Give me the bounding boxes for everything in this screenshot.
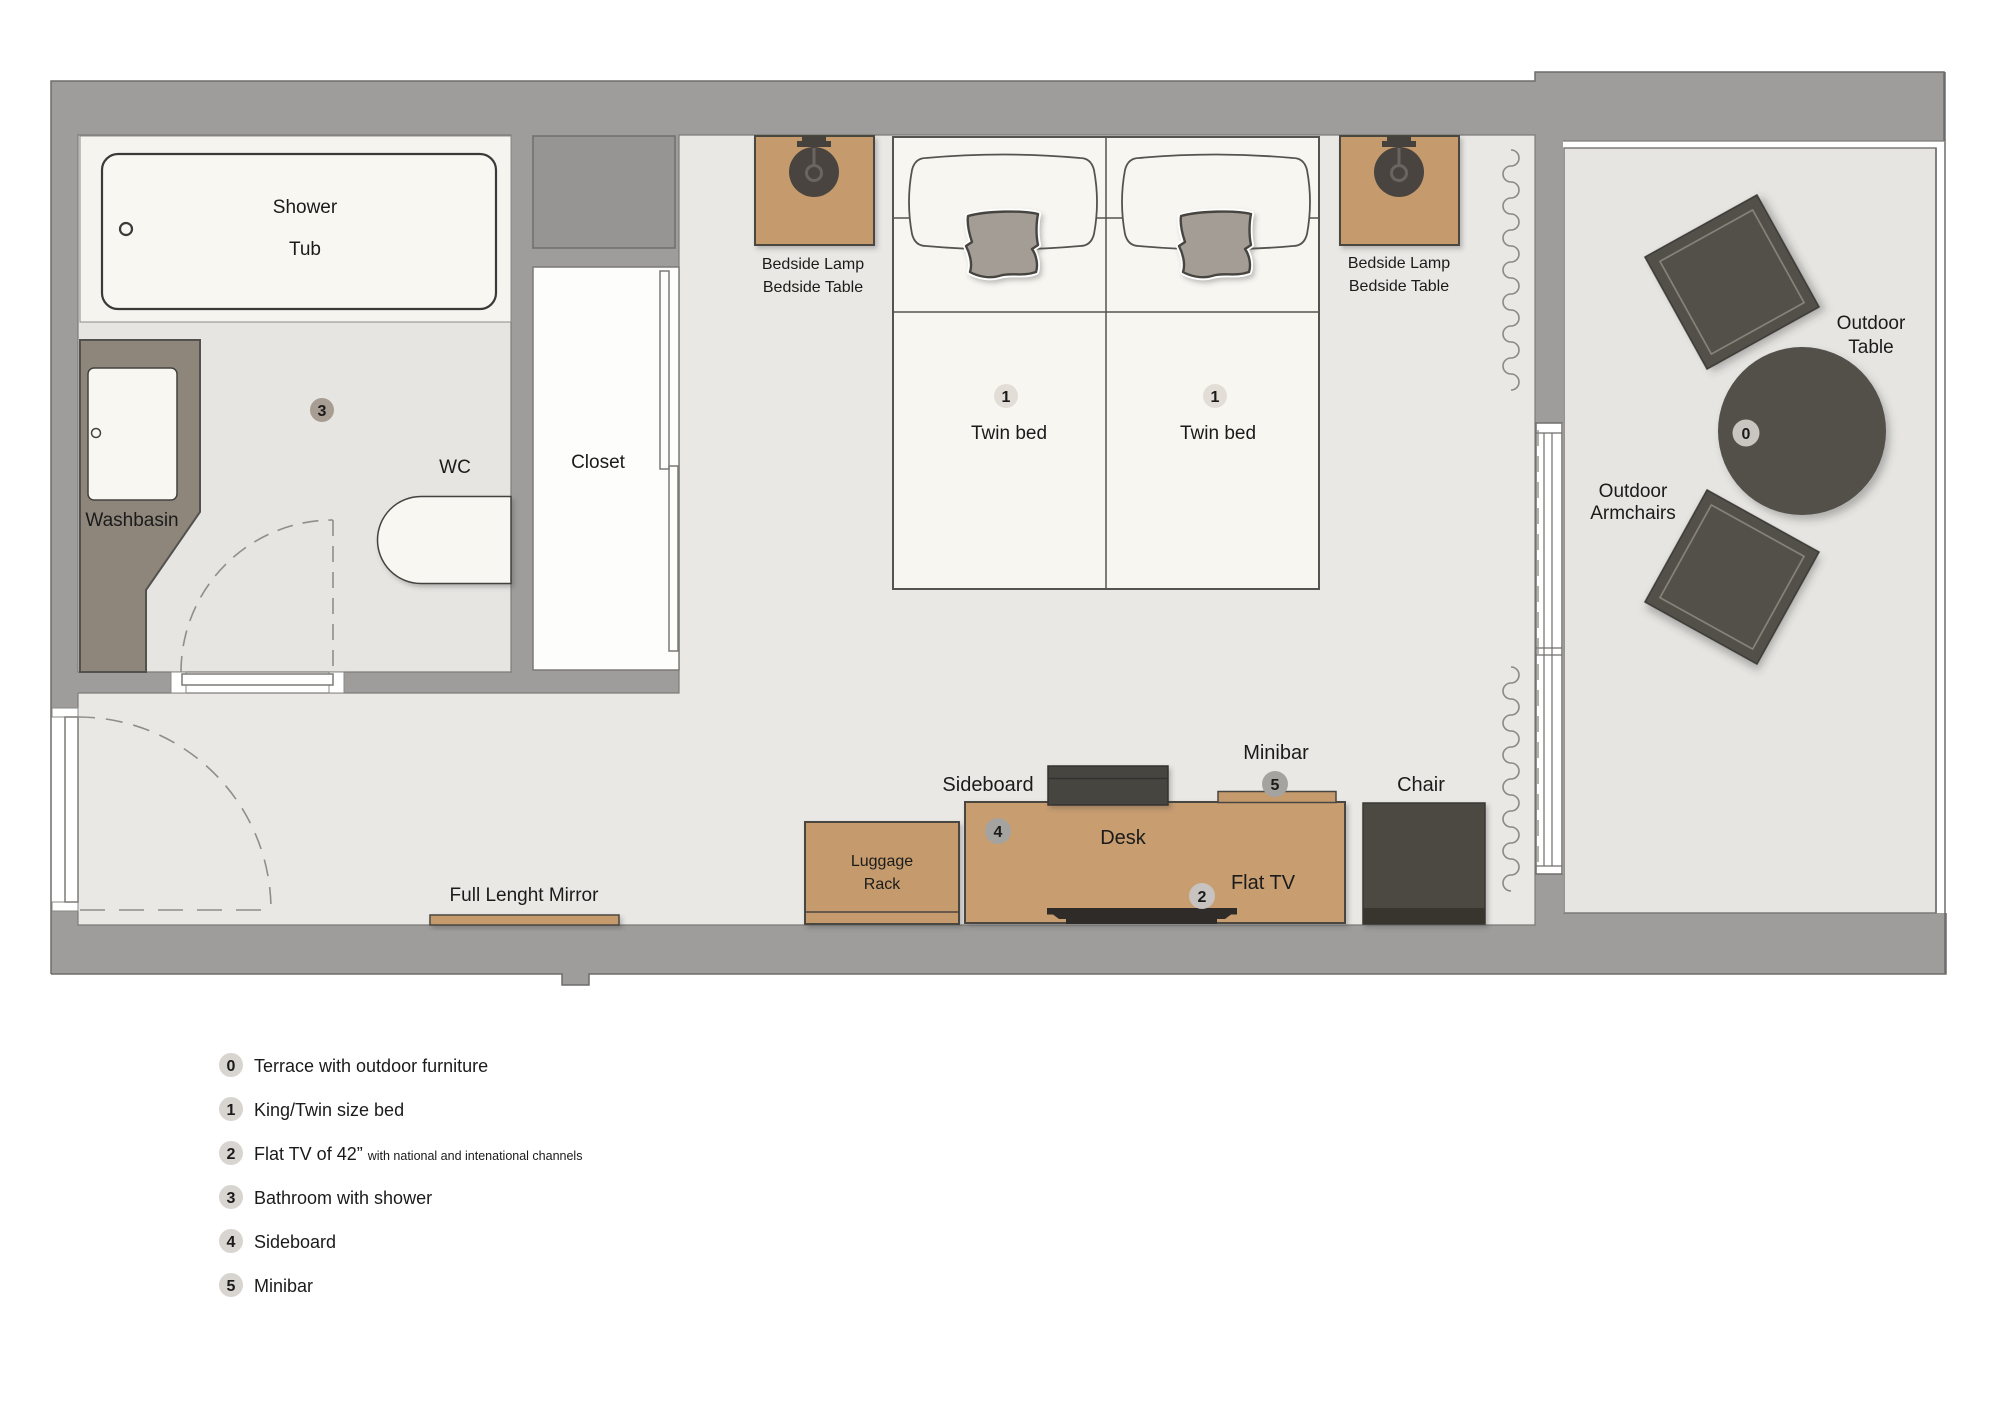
svg-text:Closet: Closet (571, 452, 626, 473)
svg-text:Bathroom with shower: Bathroom with shower (254, 1188, 432, 1208)
svg-text:Minibar: Minibar (254, 1276, 313, 1296)
svg-text:Rack: Rack (864, 876, 901, 893)
svg-text:Table: Table (1848, 337, 1893, 358)
svg-text:Washbasin: Washbasin (85, 510, 178, 531)
svg-text:Bedside Lamp: Bedside Lamp (762, 256, 864, 273)
svg-text:0: 0 (227, 1058, 236, 1075)
svg-text:Sideboard: Sideboard (254, 1232, 336, 1252)
svg-text:Flat TV: Flat TV (1231, 872, 1296, 894)
svg-text:Outdoor: Outdoor (1599, 481, 1668, 502)
svg-text:Twin bed: Twin bed (1180, 423, 1256, 444)
svg-text:Luggage: Luggage (851, 853, 913, 870)
svg-text:1: 1 (227, 1102, 236, 1119)
svg-text:Bedside Table: Bedside Table (1349, 278, 1449, 295)
svg-text:Shower: Shower (273, 197, 338, 218)
svg-text:Chair: Chair (1397, 774, 1445, 796)
svg-text:Terrace with outdoor furniture: Terrace with outdoor furniture (254, 1056, 488, 1076)
svg-text:2: 2 (227, 1146, 236, 1163)
svg-text:King/Twin size bed: King/Twin size bed (254, 1100, 404, 1120)
svg-text:Full Lenght Mirror: Full Lenght Mirror (450, 885, 600, 906)
svg-text:WC: WC (439, 457, 471, 478)
svg-text:1: 1 (1211, 389, 1220, 406)
svg-text:5: 5 (227, 1278, 236, 1295)
svg-text:Tub: Tub (289, 239, 321, 260)
svg-text:Bedside Lamp: Bedside Lamp (1348, 255, 1450, 272)
svg-text:1: 1 (1002, 389, 1011, 406)
svg-text:2: 2 (1198, 889, 1207, 906)
svg-text:Bedside Table: Bedside Table (763, 279, 863, 296)
svg-text:3: 3 (318, 403, 327, 420)
svg-text:0: 0 (1742, 426, 1751, 443)
svg-text:Armchairs: Armchairs (1590, 503, 1676, 524)
svg-text:5: 5 (1271, 777, 1280, 794)
svg-text:4: 4 (994, 824, 1003, 841)
svg-text:Outdoor: Outdoor (1837, 313, 1906, 334)
svg-text:Sideboard: Sideboard (942, 774, 1033, 796)
svg-text:Twin bed: Twin bed (971, 423, 1047, 444)
svg-text:Minibar: Minibar (1243, 742, 1309, 764)
svg-text:4: 4 (227, 1234, 236, 1251)
svg-text:Desk: Desk (1100, 827, 1147, 849)
svg-text:3: 3 (227, 1190, 236, 1207)
